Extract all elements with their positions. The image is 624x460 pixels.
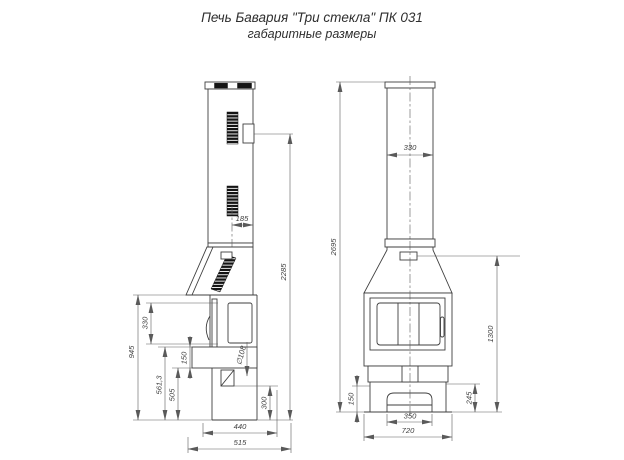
dim-side-vent-offset: 185	[236, 214, 249, 223]
dim-front-total-height: 2695	[329, 238, 338, 257]
side-chimney-flange	[208, 243, 253, 247]
drawing-sheet: Печь Бавария "Три стекла" ПК 031 габарит…	[0, 0, 624, 460]
dim-side-glass-height: 330	[141, 316, 150, 329]
dim-side-depth-total: 515	[234, 438, 247, 447]
dim-side-flue-outlet-height: 2285	[279, 263, 288, 282]
title-block: Печь Бавария "Три стекла" ПК 031 габарит…	[201, 10, 423, 41]
dim-side-shelf-bottom-height: 505	[168, 388, 177, 401]
drawing-title: Печь Бавария "Три стекла" ПК 031	[201, 10, 423, 25]
technical-drawing: Печь Бавария "Три стекла" ПК 031 габарит…	[0, 0, 624, 460]
front-view	[364, 76, 520, 418]
dim-side-shelf-thickness: 150	[180, 351, 189, 364]
side-cap-vent-right	[238, 83, 252, 88]
side-cap-vent-left	[215, 83, 228, 88]
front-door-handle	[441, 317, 445, 337]
drawing-subtitle: габаритные размеры	[248, 27, 377, 41]
front-glass	[377, 303, 440, 345]
dim-front-chimney-width: 330	[404, 143, 417, 152]
dim-front-firebox-top-height: 1300	[486, 325, 495, 343]
side-flue-outlet	[243, 124, 254, 143]
front-ash-niche	[387, 393, 432, 412]
dim-side-body-height: 945	[127, 345, 136, 358]
side-view	[186, 82, 257, 420]
side-hood-plate	[221, 252, 232, 259]
dim-front-width-total: 720	[402, 426, 415, 435]
dim-front-niche-height: 245	[465, 391, 474, 405]
dim-front-plinth-height: 150	[347, 392, 356, 405]
dim-side-shelf-top-height: 561,3	[155, 375, 164, 395]
side-glass-window	[228, 303, 252, 343]
dim-side-rear-outlet-height: 300	[260, 396, 269, 409]
dim-front-niche-width: 350	[404, 412, 417, 421]
side-vent-grille-upper	[227, 112, 238, 144]
side-door-handle	[206, 316, 210, 340]
front-hood-plate	[400, 252, 417, 260]
dim-side-depth-body: 440	[234, 422, 247, 431]
side-vent-grille-lower	[227, 186, 238, 216]
